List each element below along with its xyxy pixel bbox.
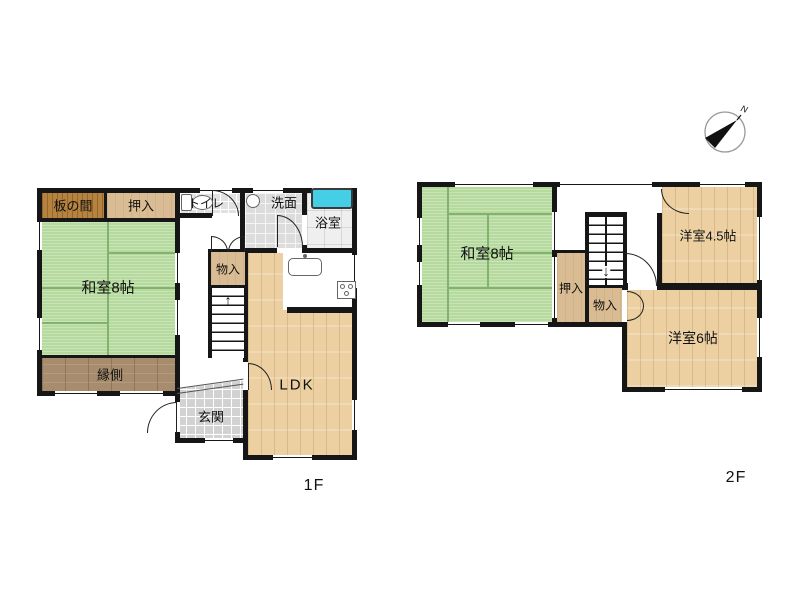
window bbox=[273, 455, 312, 460]
wall-segment bbox=[417, 182, 422, 327]
stairs-down-arrow-icon: ↓ bbox=[602, 266, 610, 278]
kitchen-tap-icon bbox=[303, 254, 307, 258]
room-label-western45: 洋室4.5帖 bbox=[679, 226, 736, 245]
washbasin-icon bbox=[246, 194, 260, 208]
room-label-ldk: LDK bbox=[279, 377, 314, 394]
window bbox=[560, 182, 652, 187]
window bbox=[417, 218, 422, 245]
room-label-washroom: 洗面 bbox=[271, 193, 297, 212]
wall-segment bbox=[585, 285, 627, 288]
window bbox=[37, 318, 42, 350]
room-label-genkan: 玄関 bbox=[198, 407, 224, 426]
door-arc-front-door bbox=[147, 402, 177, 433]
room-label-western6: 洋室6帖 bbox=[668, 328, 718, 348]
window bbox=[352, 400, 357, 430]
sliding-door-mark bbox=[175, 300, 180, 335]
floor-plan-canvas: ↑ 板の間 押入 トイレ 洗面 浴室 和室8帖 縁側 物入 LDK 玄関 1F bbox=[0, 0, 800, 600]
tatami-line bbox=[447, 213, 553, 215]
window bbox=[665, 387, 742, 392]
entrance-door-mark bbox=[205, 438, 233, 443]
window bbox=[757, 217, 762, 280]
room-label-bathroom: 浴室 bbox=[315, 213, 341, 232]
room-label-washitsu-2f: 和室8帖 bbox=[460, 243, 513, 264]
door-arc-storage-right bbox=[228, 236, 245, 252]
sliding-door-mark bbox=[552, 212, 557, 250]
room-label-engawa: 縁側 bbox=[97, 365, 123, 384]
wall-segment bbox=[552, 250, 588, 253]
room-label-oshiire-1f: 押入 bbox=[128, 196, 154, 215]
room-label-storage-2f: 物入 bbox=[593, 297, 617, 314]
wall-segment bbox=[42, 355, 175, 358]
tatami-line bbox=[107, 252, 175, 254]
window bbox=[448, 322, 480, 327]
door-arc-storage-left bbox=[211, 236, 228, 252]
wall-segment bbox=[37, 218, 180, 222]
window bbox=[515, 322, 548, 327]
floor-label-2f: 2F bbox=[726, 469, 747, 487]
window bbox=[700, 182, 745, 187]
wall-segment bbox=[37, 188, 357, 193]
tatami-line bbox=[447, 187, 449, 322]
kitchen-sink-icon bbox=[288, 258, 322, 276]
room-label-storage-1f: 物入 bbox=[216, 261, 240, 278]
floor-label-1f: 1F bbox=[304, 477, 325, 495]
tatami-line bbox=[42, 322, 109, 324]
door-arc-western6 bbox=[625, 253, 657, 286]
wall-segment bbox=[104, 191, 107, 220]
stove-burner-icon bbox=[340, 284, 345, 289]
tatami-line bbox=[447, 287, 553, 289]
sliding-door-mark bbox=[175, 253, 180, 283]
room-label-toilet: トイレ bbox=[188, 195, 224, 212]
room-label-itanoma: 板の間 bbox=[53, 196, 92, 215]
kitchen-partition-wall bbox=[287, 307, 352, 313]
window bbox=[37, 222, 42, 250]
sliding-door-mark bbox=[552, 257, 557, 318]
compass-icon bbox=[700, 107, 752, 159]
room-label-washitsu-1f: 和室8帖 bbox=[81, 277, 134, 298]
stove-burner-icon bbox=[344, 291, 349, 296]
stairs-up-arrow-icon: ↑ bbox=[224, 293, 232, 310]
room-label-oshiire-2f: 押入 bbox=[559, 280, 583, 297]
door-opening bbox=[277, 248, 302, 253]
stove-burner-icon bbox=[348, 284, 353, 289]
window bbox=[55, 391, 97, 396]
window bbox=[417, 262, 422, 285]
window bbox=[120, 391, 163, 396]
window bbox=[757, 318, 762, 357]
wall-segment bbox=[245, 249, 248, 288]
door-opening bbox=[302, 215, 307, 245]
bathtub-icon bbox=[311, 188, 353, 209]
window bbox=[455, 182, 533, 187]
